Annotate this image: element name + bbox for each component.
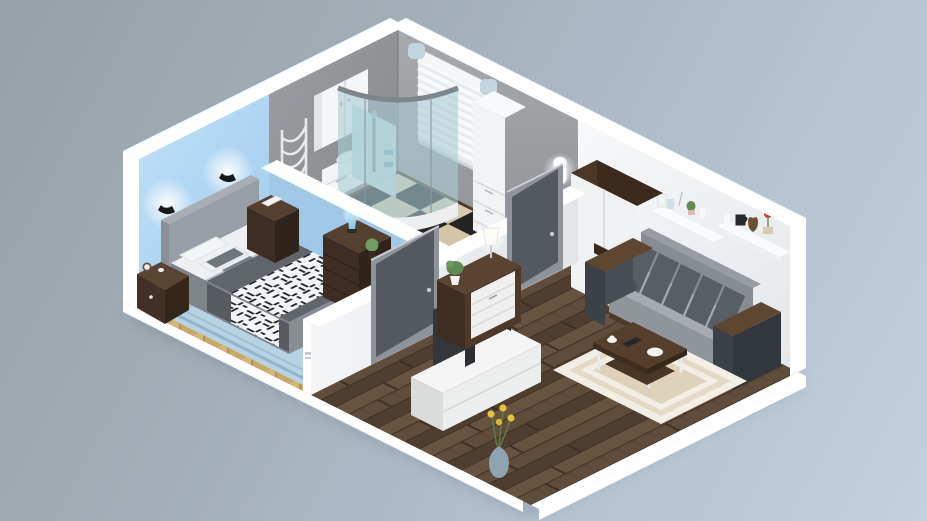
door-handle [550,232,554,236]
shower-glass [338,88,458,218]
alarm-clock [143,263,152,272]
door-handle [427,288,431,292]
coffee-cup [158,268,164,272]
drawer-knob [149,295,153,299]
decor-candle [724,213,730,225]
decor-candle [700,207,705,218]
decor-box [667,199,674,209]
cactus-plant [687,201,696,211]
apartment-isometric-render [0,0,927,521]
nightstand-right [247,195,299,263]
coffee-mug [736,215,747,225]
decor-box [658,194,666,207]
blinds-end-cap [408,43,425,59]
plate [647,348,663,357]
